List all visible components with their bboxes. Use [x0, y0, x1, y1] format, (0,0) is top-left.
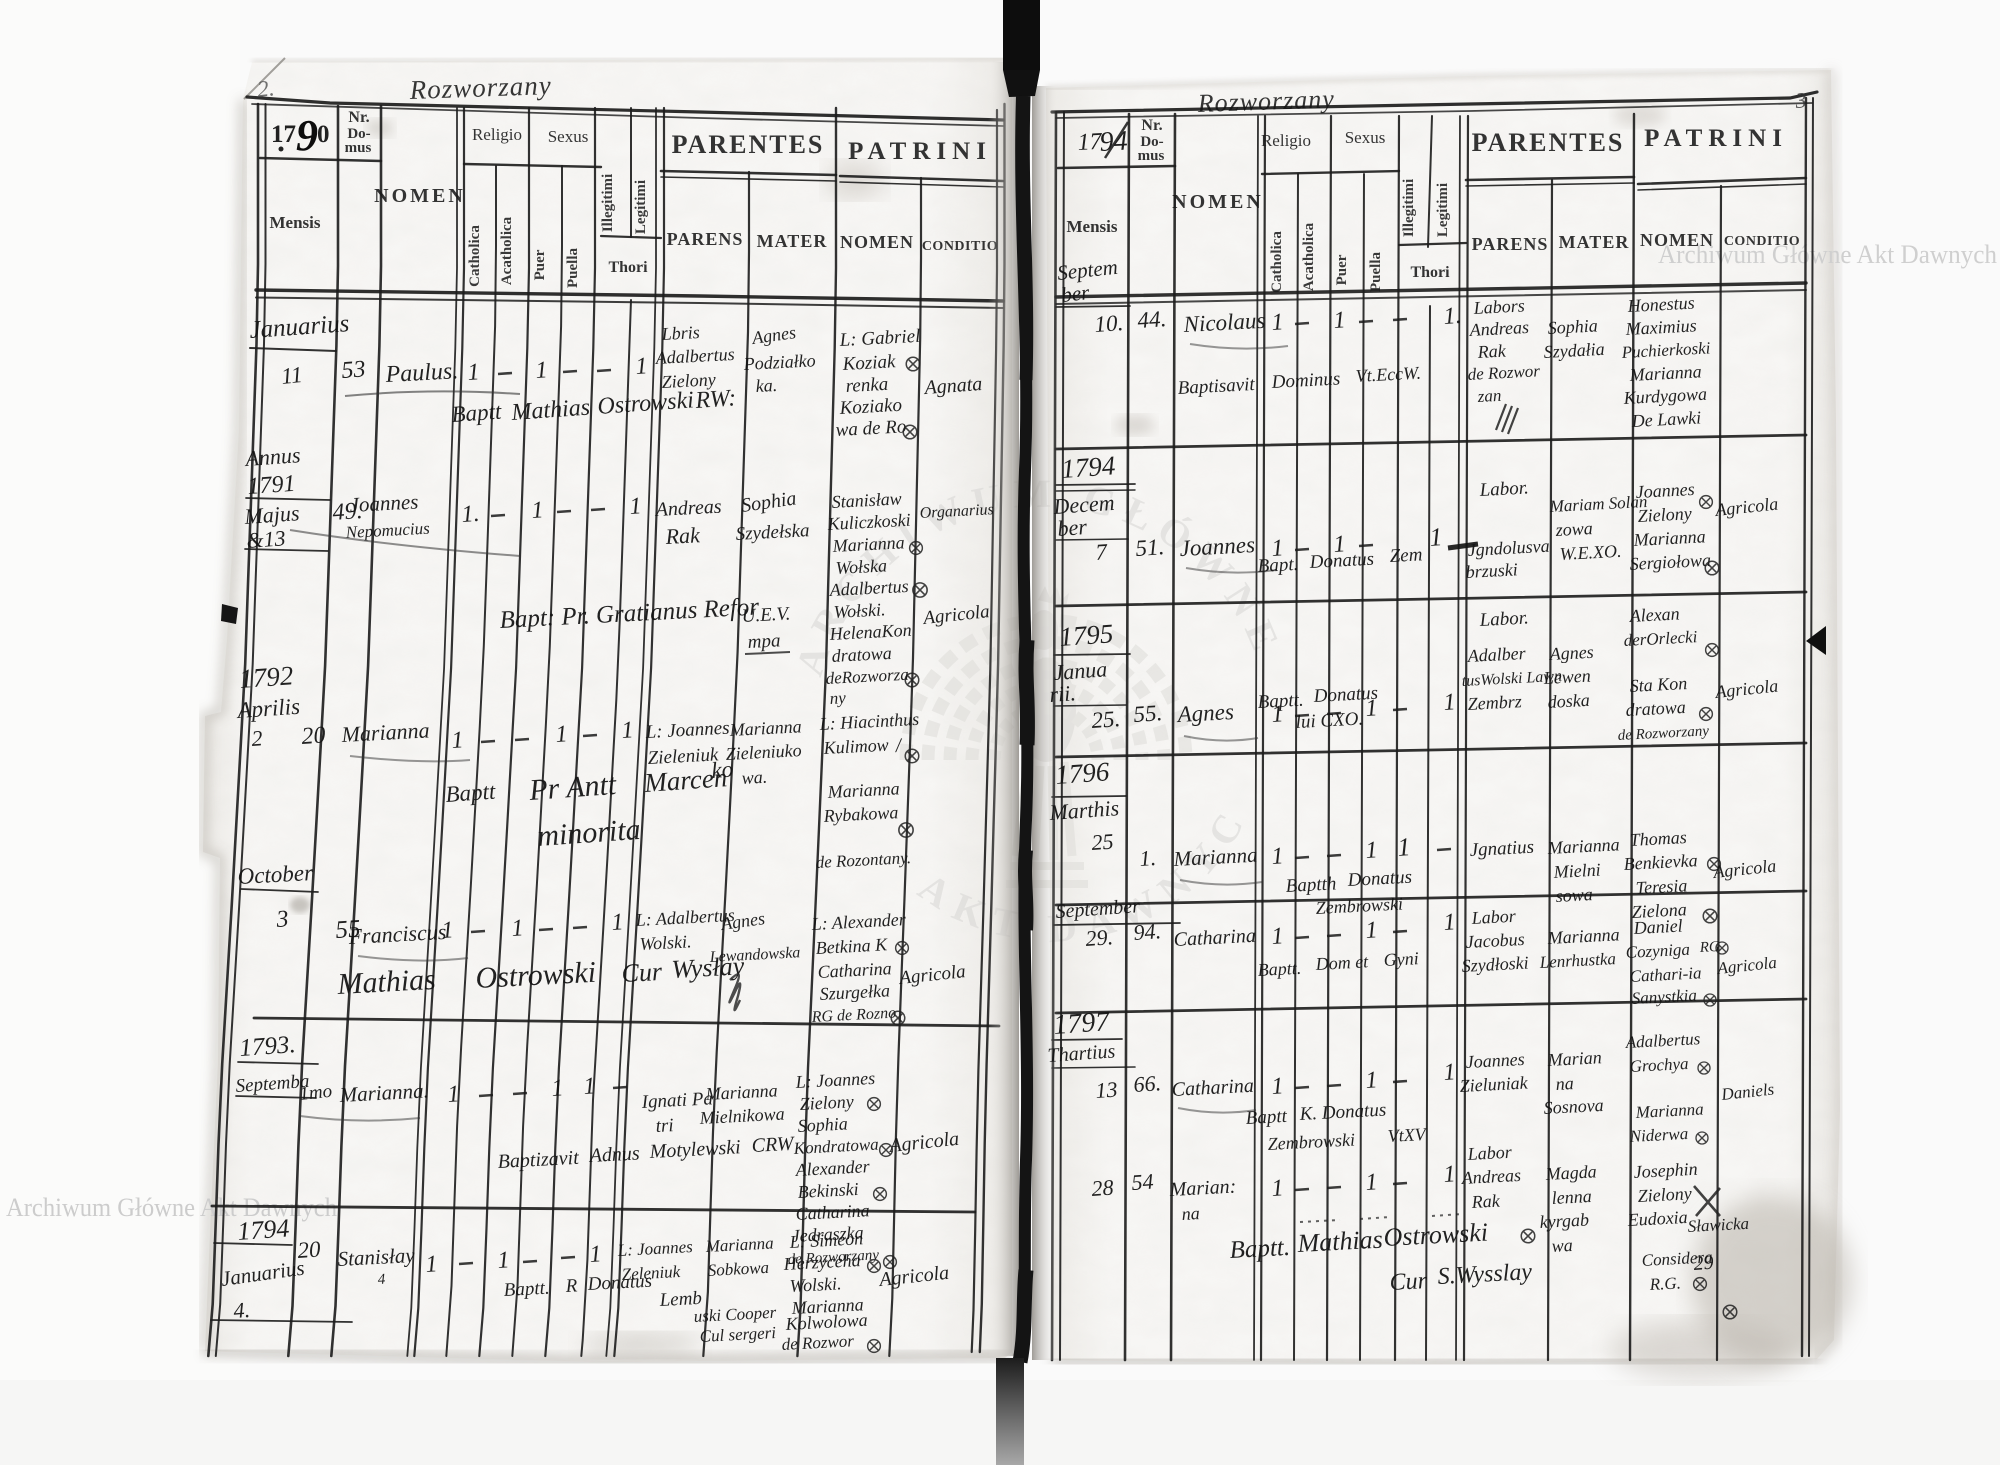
- svg-text:Agnes: Agnes: [1548, 642, 1594, 664]
- svg-text:Marianna.: Marianna.: [338, 1078, 429, 1107]
- svg-text:Andreas: Andreas: [653, 496, 722, 522]
- svg-text:ko: ko: [711, 757, 734, 783]
- svg-text:Mathias: Mathias: [336, 963, 437, 1001]
- svg-text:Marianna: Marianna: [1632, 526, 1706, 550]
- svg-text:1: 1: [1443, 689, 1457, 716]
- svg-text:Marian:: Marian:: [1168, 1176, 1237, 1202]
- svg-text:Baptt.: Baptt.: [1257, 958, 1301, 980]
- svg-text:Sławicka: Sławicka: [1687, 1214, 1749, 1236]
- svg-text:lenna: lenna: [1551, 1186, 1592, 1208]
- svg-text:CRW: CRW: [751, 1133, 796, 1157]
- svg-text:Marianna: Marianna: [704, 1080, 778, 1104]
- svg-text:1: 1: [583, 1073, 597, 1100]
- svg-text:Labor.: Labor.: [1478, 607, 1529, 631]
- svg-text:Paulus.: Paulus.: [384, 358, 459, 388]
- svg-text:NOMEN: NOMEN: [840, 232, 914, 252]
- svg-text:&13: &13: [246, 525, 287, 553]
- svg-text:1: 1: [1443, 1059, 1457, 1086]
- svg-text:55.: 55.: [1133, 700, 1163, 727]
- svg-text:Sosnova: Sosnova: [1543, 1095, 1604, 1118]
- svg-text:Sta Kon: Sta Kon: [1629, 673, 1687, 696]
- svg-text:zan: zan: [1476, 386, 1502, 406]
- svg-text:ber: ber: [1060, 280, 1091, 307]
- svg-text:brzuski: brzuski: [1465, 559, 1518, 582]
- svg-text:Jacobus: Jacobus: [1465, 929, 1525, 952]
- svg-text:Aprilis: Aprilis: [235, 694, 301, 723]
- svg-text:Josephin: Josephin: [1633, 1159, 1698, 1182]
- svg-text:Rozworzany: Rozworzany: [408, 70, 552, 105]
- svg-text:Legitimi: Legitimi: [1435, 183, 1451, 237]
- svg-text:Baptt: Baptt: [451, 399, 503, 427]
- svg-text:Joannes: Joannes: [349, 489, 419, 517]
- svg-text:1: 1: [551, 1075, 565, 1102]
- svg-text:Catharina: Catharina: [1173, 925, 1256, 951]
- svg-text:dratowa: dratowa: [1625, 697, 1686, 720]
- svg-text:Koziak: Koziak: [841, 351, 896, 375]
- svg-text:Mielni: Mielni: [1552, 860, 1601, 882]
- svg-text:53: 53: [341, 356, 367, 384]
- svg-text:Sophia: Sophia: [1547, 315, 1598, 338]
- svg-text:Franciscus: Franciscus: [347, 919, 447, 949]
- svg-text:1791: 1791: [247, 471, 297, 500]
- svg-text:Rak: Rak: [1476, 341, 1507, 363]
- svg-text:Wysłay: Wysłay: [671, 951, 746, 984]
- svg-text:Bapt.: Bapt.: [1257, 554, 1299, 577]
- svg-text:Koziako: Koziako: [838, 395, 902, 419]
- svg-text:na: na: [1555, 1073, 1574, 1094]
- svg-text:Baptt.: Baptt.: [1229, 1234, 1291, 1264]
- svg-text:Agnata: Agnata: [922, 373, 983, 399]
- svg-text:S.Wysslay: S.Wysslay: [1437, 1259, 1533, 1290]
- svg-text:1792: 1792: [238, 660, 294, 694]
- svg-text:Marian: Marian: [1546, 1047, 1602, 1070]
- svg-text:1: 1: [1443, 909, 1457, 936]
- svg-text:1: 1: [1271, 843, 1285, 870]
- svg-text:66.: 66.: [1133, 1070, 1162, 1097]
- svg-text:Donatus: Donatus: [1308, 549, 1374, 573]
- svg-text:Sergiołowa: Sergiołowa: [1629, 550, 1711, 574]
- svg-text:Sobkowa: Sobkowa: [707, 1258, 769, 1280]
- svg-text:Nr.: Nr.: [1141, 117, 1162, 134]
- svg-text:De Lawki: De Lawki: [1630, 407, 1701, 431]
- svg-text:Zieleniuko: Zieleniuko: [725, 740, 802, 764]
- svg-text:Baptt: Baptt: [1245, 1106, 1288, 1129]
- svg-text:Donatus: Donatus: [586, 1271, 652, 1295]
- svg-text:renka: renka: [845, 374, 889, 397]
- svg-text:Sexus: Sexus: [548, 127, 589, 146]
- svg-text:1: 1: [1365, 1169, 1379, 1196]
- svg-text:Joannes: Joannes: [1465, 1049, 1525, 1072]
- svg-text:Marianna: Marianna: [1628, 361, 1702, 385]
- svg-text:Lewen: Lewen: [1542, 666, 1591, 688]
- svg-text:20: 20: [301, 722, 327, 750]
- svg-text:Legitimi: Legitimi: [633, 180, 649, 234]
- svg-text:doska: doska: [1547, 690, 1590, 712]
- svg-text:1: 1: [1271, 1073, 1285, 1100]
- svg-text:10.: 10.: [1094, 310, 1124, 337]
- svg-text:wa.: wa.: [741, 767, 768, 788]
- svg-text:October: October: [237, 860, 315, 889]
- svg-text:Marianna: Marianna: [1172, 843, 1258, 871]
- svg-text:Cur: Cur: [621, 957, 664, 988]
- svg-text:ny: ny: [829, 688, 846, 708]
- svg-text:L: Simeon: L: Simeon: [788, 1228, 863, 1252]
- svg-text:Labors: Labors: [1472, 295, 1525, 318]
- svg-text:W.E.XO.: W.E.XO.: [1559, 541, 1622, 564]
- svg-text:1: 1: [589, 1241, 603, 1268]
- svg-text:R.G.: R.G.: [1648, 1273, 1681, 1294]
- svg-text:Adnus: Adnus: [587, 1142, 640, 1167]
- svg-text:Adalbertus: Adalbertus: [654, 344, 735, 368]
- svg-text:3: 3: [275, 906, 290, 933]
- svg-text:Catharina: Catharina: [817, 958, 892, 982]
- svg-text:Szydałia: Szydałia: [1543, 339, 1605, 362]
- svg-text:2.: 2.: [256, 75, 276, 102]
- svg-text:R: R: [564, 1275, 578, 1297]
- svg-text:1: 1: [555, 721, 569, 748]
- svg-text:Ostrowski: Ostrowski: [1383, 1218, 1489, 1252]
- svg-text:Puer: Puer: [532, 249, 548, 280]
- svg-text:Donatus: Donatus: [1312, 683, 1378, 707]
- svg-text:Nr.: Nr.: [348, 109, 369, 126]
- svg-text:U.E.V.: U.E.V.: [741, 603, 791, 627]
- svg-text:Wołski.: Wołski.: [833, 599, 886, 622]
- svg-text:Donatus: Donatus: [1346, 867, 1412, 891]
- svg-text:Alexander: Alexander: [794, 1156, 871, 1180]
- svg-text:1797: 1797: [1052, 1006, 1111, 1041]
- svg-text:1: 1: [467, 359, 481, 386]
- svg-text:1: 1: [1396, 832, 1411, 862]
- svg-text:Wolski.: Wolski.: [639, 931, 692, 954]
- svg-text:Alexan: Alexan: [1628, 603, 1680, 626]
- svg-text:Rak: Rak: [1470, 1191, 1501, 1213]
- svg-text:ka.: ka.: [755, 375, 778, 396]
- svg-text:Andreas: Andreas: [1468, 317, 1529, 340]
- svg-text:Baptt: Baptt: [445, 779, 497, 807]
- svg-text:1793.: 1793.: [239, 1031, 297, 1062]
- svg-text:Stanisłay: Stanisłay: [337, 1243, 416, 1271]
- svg-text:1: 1: [629, 493, 643, 520]
- svg-text:1: 1: [1365, 1067, 1379, 1094]
- svg-text:mpa: mpa: [747, 630, 781, 653]
- svg-text:Agnes: Agnes: [1175, 699, 1234, 727]
- svg-text:Sexus: Sexus: [1345, 128, 1386, 147]
- svg-text:PATRINI: PATRINI: [848, 138, 992, 165]
- svg-text:44.: 44.: [1137, 306, 1167, 333]
- svg-text:NOMEN: NOMEN: [1172, 191, 1264, 213]
- svg-text:1: 1: [441, 917, 455, 944]
- svg-text:Szydełska: Szydełska: [735, 520, 810, 545]
- svg-text:Benkievka: Benkievka: [1623, 850, 1698, 874]
- svg-text:Baptisavit: Baptisavit: [1177, 374, 1256, 399]
- svg-text:1795: 1795: [1058, 618, 1114, 652]
- svg-text:mus: mus: [1138, 148, 1165, 164]
- svg-text:sowa: sowa: [1555, 884, 1593, 906]
- svg-text:RG: RG: [1698, 939, 1720, 956]
- svg-text:1796: 1796: [1054, 756, 1110, 790]
- svg-text:Wołska: Wołska: [835, 555, 887, 578]
- svg-text:de Rozwor: de Rozwor: [1467, 361, 1541, 384]
- svg-text:11: 11: [280, 362, 304, 389]
- svg-text:54: 54: [1131, 1169, 1155, 1195]
- svg-text:1: 1: [447, 1081, 461, 1108]
- svg-text:VtXV: VtXV: [1387, 1124, 1428, 1146]
- svg-text:Illegitimi: Illegitimi: [1401, 179, 1417, 237]
- svg-text:Dominus: Dominus: [1270, 368, 1341, 393]
- svg-text:1: 1: [1365, 917, 1379, 944]
- svg-text:1.: 1.: [1443, 303, 1463, 330]
- svg-text:1: 1: [1428, 522, 1443, 552]
- svg-text:Lenrhustka: Lenrhustka: [1538, 949, 1616, 972]
- svg-text:29: 29: [1693, 1252, 1714, 1275]
- svg-text:Honestus: Honestus: [1626, 293, 1695, 317]
- svg-text:2: 2: [251, 725, 264, 751]
- svg-text:1794: 1794: [236, 1213, 290, 1246]
- svg-text:Nicolaus: Nicolaus: [1182, 308, 1266, 337]
- svg-text:Maximius: Maximius: [1624, 315, 1697, 339]
- svg-text:Teresia: Teresia: [1635, 875, 1688, 898]
- svg-text:Vt.EccW.: Vt.EccW.: [1355, 363, 1421, 386]
- svg-text:Herzyceha: Herzyceha: [782, 1250, 861, 1274]
- svg-text:Thori: Thori: [608, 259, 648, 276]
- svg-text:Daniel: Daniel: [1632, 915, 1683, 938]
- svg-text:CONDITIO: CONDITIO: [922, 239, 998, 254]
- svg-text:Cul sergeri: Cul sergeri: [699, 1323, 777, 1346]
- svg-text:29.: 29.: [1085, 924, 1114, 951]
- svg-text:Puella: Puella: [1368, 252, 1384, 292]
- svg-text:Eudoxia: Eudoxia: [1626, 1207, 1688, 1230]
- svg-text:PATRINI: PATRINI: [1644, 125, 1788, 152]
- svg-text:Niderwa: Niderwa: [1628, 1124, 1688, 1146]
- svg-text:Catharina: Catharina: [1171, 1075, 1254, 1101]
- svg-text:PARENS: PARENS: [667, 229, 744, 249]
- svg-text:Marianna: Marianna: [728, 716, 802, 740]
- svg-text:Labor: Labor: [1466, 1142, 1513, 1164]
- svg-text:1: 1: [635, 353, 649, 380]
- svg-text:94.: 94.: [1133, 918, 1162, 945]
- svg-text:Cur: Cur: [1389, 1268, 1428, 1296]
- svg-text:Catholica: Catholica: [1269, 231, 1285, 293]
- svg-text:Dom et: Dom et: [1314, 951, 1369, 974]
- svg-text:Mathias: Mathias: [510, 395, 591, 426]
- svg-text:L: Gabriel: L: Gabriel: [838, 326, 921, 351]
- svg-text:9: 9: [296, 111, 318, 160]
- svg-text:Lbris: Lbris: [660, 322, 700, 344]
- svg-text:PARENTES: PARENTES: [1472, 128, 1625, 157]
- svg-text:Jgnatius: Jgnatius: [1469, 837, 1534, 861]
- svg-text:MATER: MATER: [757, 231, 828, 251]
- svg-text:Thori: Thori: [1410, 264, 1450, 281]
- svg-text:PARENS: PARENS: [1472, 234, 1549, 254]
- svg-text:Gyni: Gyni: [1383, 948, 1419, 970]
- svg-text:20: 20: [297, 1236, 322, 1263]
- svg-text:1: 1: [425, 1251, 439, 1278]
- svg-text:Pr Antt: Pr Antt: [527, 768, 618, 807]
- svg-text:Religio: Religio: [1261, 131, 1311, 150]
- svg-text:Zielony: Zielony: [1637, 1183, 1692, 1206]
- svg-text:1.: 1.: [461, 501, 481, 528]
- svg-text:25.: 25.: [1091, 706, 1121, 733]
- svg-text:Grochya: Grochya: [1629, 1054, 1689, 1076]
- svg-text:MATER: MATER: [1559, 232, 1630, 252]
- svg-text:Zielony: Zielony: [1637, 503, 1692, 526]
- svg-text:13: 13: [1095, 1077, 1119, 1103]
- svg-text:Adalber: Adalber: [1466, 643, 1527, 666]
- svg-text:Catharina: Catharina: [795, 1200, 870, 1224]
- svg-text:1: 1: [535, 357, 549, 384]
- svg-text:wa de Ro: wa de Ro: [835, 416, 907, 441]
- svg-text:de Rozwor: de Rozwor: [781, 1331, 855, 1354]
- svg-text:Magda: Magda: [1544, 1161, 1597, 1184]
- svg-text:1: 1: [1443, 1161, 1457, 1188]
- svg-text:Marianna: Marianna: [831, 532, 905, 556]
- svg-text:Marianna: Marianna: [826, 778, 900, 802]
- svg-text:Zem: Zem: [1389, 544, 1423, 567]
- svg-text:Zembrz: Zembrz: [1467, 691, 1522, 714]
- svg-text:kyrgab: kyrgab: [1539, 1209, 1589, 1232]
- svg-text:51.: 51.: [1135, 534, 1165, 561]
- svg-text:Wolski.: Wolski.: [789, 1273, 842, 1296]
- svg-text:4.: 4.: [233, 1297, 251, 1323]
- svg-text:Marianna: Marianna: [1546, 924, 1620, 948]
- svg-text:0: 0: [317, 121, 330, 148]
- svg-text:1: 1: [1271, 1175, 1285, 1202]
- svg-text:ber: ber: [1057, 514, 1088, 541]
- svg-text:1: 1: [511, 915, 525, 942]
- svg-text:1: 1: [497, 1247, 511, 1274]
- svg-text:na: na: [1181, 1203, 1200, 1224]
- svg-text:1: 1: [531, 497, 545, 524]
- svg-text:Mensis: Mensis: [1067, 217, 1118, 236]
- svg-text:Kulimow: Kulimow: [822, 735, 889, 758]
- svg-text:L: Joannes: L: Joannes: [616, 1237, 693, 1260]
- svg-text:Religio: Religio: [472, 125, 522, 144]
- svg-text:Illegitimi: Illegitimi: [600, 174, 616, 232]
- svg-text:1794: 1794: [1060, 450, 1116, 484]
- svg-text:1.: 1.: [1139, 845, 1157, 871]
- svg-text:Podziałko: Podziałko: [742, 350, 816, 374]
- svg-text:Marianna: Marianna: [704, 1233, 774, 1256]
- svg-text:CONDITIO: CONDITIO: [1724, 234, 1800, 249]
- svg-text:Andreas: Andreas: [1460, 1165, 1521, 1188]
- svg-text:zowa: zowa: [1554, 518, 1593, 540]
- svg-text:Baptt.: Baptt.: [503, 1278, 550, 1301]
- svg-text:Sanystkia: Sanystkia: [1631, 986, 1697, 1008]
- svg-text:Thomas: Thomas: [1629, 827, 1687, 850]
- svg-text:Cathari-ia: Cathari-ia: [1629, 963, 1702, 986]
- svg-text:Jgndolusva: Jgndolusva: [1467, 536, 1550, 560]
- svg-text:NOMEN: NOMEN: [374, 185, 466, 207]
- svg-text:mus: mus: [345, 140, 372, 156]
- svg-text:28: 28: [1091, 1175, 1115, 1201]
- svg-text:Puella: Puella: [565, 248, 581, 288]
- svg-text:Baptizavit: Baptizavit: [497, 1147, 580, 1173]
- svg-text:25: 25: [1091, 829, 1115, 855]
- svg-text:Betkina K: Betkina K: [815, 934, 888, 958]
- svg-text:1: 1: [611, 909, 625, 936]
- svg-text:1: 1: [1365, 837, 1379, 864]
- svg-text:Labor.: Labor.: [1478, 477, 1529, 501]
- svg-text:L: Joannes: L: Joannes: [794, 1068, 875, 1092]
- svg-text:wa: wa: [1551, 1235, 1573, 1256]
- svg-text:Szurgełka: Szurgełka: [819, 980, 890, 1004]
- svg-text:3: 3: [1794, 87, 1808, 113]
- svg-text:Marthis: Marthis: [1048, 795, 1120, 825]
- svg-text:lui CXO.: lui CXO.: [1295, 708, 1364, 733]
- svg-text:Rozworzany: Rozworzany: [1196, 84, 1335, 118]
- svg-text:1: 1: [621, 717, 635, 744]
- svg-text:Zieluniak: Zieluniak: [1459, 1072, 1529, 1096]
- svg-text:derOrlecki: derOrlecki: [1623, 627, 1698, 650]
- svg-text:Puer: Puer: [1334, 254, 1350, 285]
- svg-text:Stanisław: Stanisław: [831, 488, 902, 512]
- svg-text:Mathias: Mathias: [1296, 1225, 1384, 1258]
- svg-text:Ostrowski: Ostrowski: [475, 956, 597, 995]
- svg-text:Labor: Labor: [1470, 906, 1517, 928]
- svg-text:Adalbertus: Adalbertus: [828, 576, 909, 600]
- svg-text:NOMEN: NOMEN: [1640, 230, 1714, 250]
- svg-text:Catholica: Catholica: [467, 225, 483, 287]
- svg-text:PARENTES: PARENTES: [672, 130, 825, 159]
- svg-text:1: 1: [1333, 307, 1347, 334]
- svg-text:1: 1: [1271, 309, 1285, 336]
- svg-text:Acatholica: Acatholica: [499, 216, 515, 285]
- svg-text:1: 1: [451, 727, 465, 754]
- svg-text:Szydłoski: Szydłoski: [1461, 953, 1529, 976]
- svg-text:Adalbertus: Adalbertus: [1624, 1029, 1701, 1052]
- svg-text:Marianna: Marianna: [1634, 1099, 1704, 1122]
- svg-text:Zielony: Zielony: [799, 1091, 854, 1114]
- svg-text:Marianna: Marianna: [340, 717, 430, 747]
- svg-text:L: Joannes: L: Joannes: [644, 718, 730, 743]
- svg-text:17: 17: [271, 121, 296, 148]
- svg-text:Joannes: Joannes: [1635, 479, 1695, 502]
- svg-text:Marianna: Marianna: [1546, 834, 1620, 858]
- svg-text:Baptt.: Baptt.: [1257, 690, 1304, 713]
- svg-text:Joannes: Joannes: [1179, 532, 1256, 561]
- svg-text:4: 4: [377, 1272, 386, 1288]
- svg-text:Sophia: Sophia: [797, 1113, 848, 1136]
- svg-text:rii.: rii.: [1049, 680, 1077, 707]
- svg-text:Annus: Annus: [243, 442, 302, 471]
- svg-text:Bekinski: Bekinski: [797, 1179, 859, 1202]
- svg-text:RW:: RW:: [694, 385, 737, 414]
- svg-text:1: 1: [1271, 923, 1285, 950]
- svg-text:Cozyniga: Cozyniga: [1625, 940, 1690, 962]
- svg-text:Rybakowa: Rybakowa: [822, 802, 899, 826]
- svg-text:Rak: Rak: [664, 522, 702, 549]
- svg-text:Acatholica: Acatholica: [1301, 222, 1317, 291]
- svg-text:Baptth: Baptth: [1285, 873, 1337, 897]
- svg-text:Mensis: Mensis: [270, 213, 321, 232]
- svg-text:dratowa: dratowa: [831, 643, 892, 666]
- svg-text:tri: tri: [655, 1115, 674, 1137]
- svg-text:Majus: Majus: [243, 500, 301, 529]
- svg-text:1mo: 1mo: [298, 1081, 333, 1105]
